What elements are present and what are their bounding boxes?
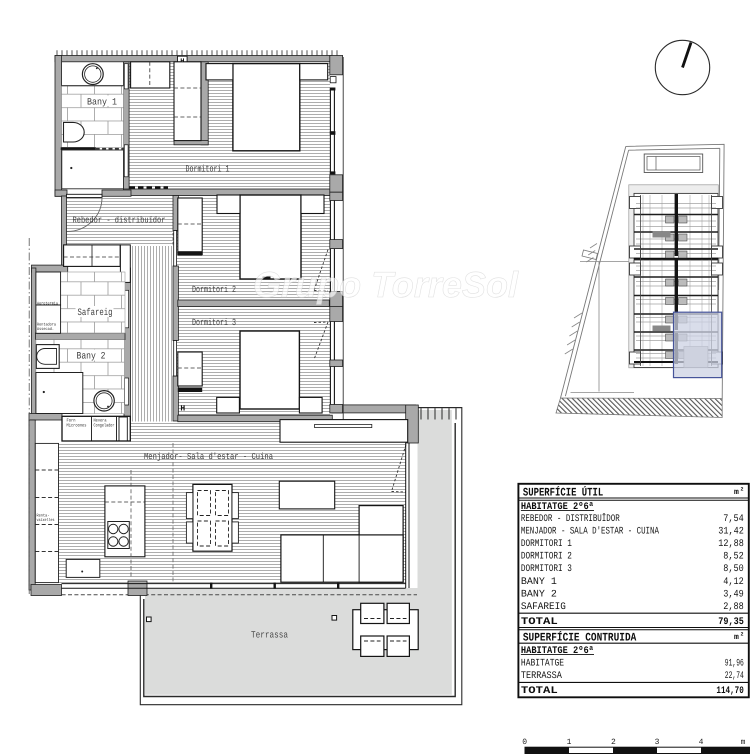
svg-text:3: 3 (655, 738, 660, 747)
svg-text:Safareig: Safareig (78, 307, 113, 318)
svg-text:8,52: 8,52 (723, 552, 744, 563)
svg-text:3,49: 3,49 (723, 589, 744, 600)
svg-text:Grupo TorreSol: Grupo TorreSol (253, 264, 519, 305)
svg-text:Congelador: Congelador (94, 422, 115, 428)
svg-text:DORMITORI 2: DORMITORI 2 (521, 552, 572, 563)
svg-text:BANY 2: BANY 2 (521, 589, 557, 600)
svg-text:2: 2 (741, 487, 744, 493)
svg-text:91,96: 91,96 (725, 658, 744, 669)
svg-text:0: 0 (522, 738, 527, 747)
svg-text:Bany 1: Bany 1 (87, 97, 117, 108)
svg-text:4,12: 4,12 (723, 577, 744, 588)
svg-text:Dormitori 3: Dormitori 3 (192, 317, 236, 328)
svg-text:m: m (734, 633, 739, 642)
svg-text:8,50: 8,50 (723, 564, 744, 575)
svg-text:1: 1 (567, 738, 572, 747)
svg-text:Terrassa: Terrassa (251, 630, 288, 641)
svg-text:TOTAL: TOTAL (521, 686, 558, 697)
svg-text:Renta-: Renta- (37, 514, 50, 519)
svg-text:MENJADOR - SALA D'ESTAR - CUIN: MENJADOR - SALA D'ESTAR - CUINA (521, 525, 659, 537)
svg-text:SUPERFÍCIE CONTRUIDA: SUPERFÍCIE CONTRUIDA (523, 630, 636, 644)
svg-text:TOTAL: TOTAL (521, 617, 558, 628)
svg-text:Microones: Microones (67, 422, 87, 428)
svg-text:Dormitori 1: Dormitori 1 (186, 164, 230, 175)
svg-text:m: m (741, 738, 746, 747)
svg-text:12,88: 12,88 (718, 539, 744, 550)
svg-text:Rebedor - distribuïdor: Rebedor - distribuïdor (73, 216, 166, 226)
svg-text:2: 2 (741, 632, 744, 638)
svg-text:31,42: 31,42 (718, 526, 744, 537)
svg-text:REBEDOR - DISTRIBUÏDOR: REBEDOR - DISTRIBUÏDOR (521, 513, 620, 525)
svg-text:Dormitori 2: Dormitori 2 (192, 284, 236, 295)
svg-text:HABITATGE 2º6ª: HABITATGE 2º6ª (521, 501, 594, 513)
svg-text:2: 2 (611, 738, 616, 747)
svg-text:4: 4 (699, 738, 704, 747)
svg-text:22,74: 22,74 (725, 671, 744, 682)
svg-text:BANY 1: BANY 1 (521, 577, 557, 588)
svg-text:7,54: 7,54 (723, 514, 744, 525)
svg-text:HABITATGE 2º6ª: HABITATGE 2º6ª (521, 645, 594, 657)
svg-text:HABITATGE: HABITATGE (521, 658, 564, 669)
svg-text:H: H (180, 405, 185, 414)
svg-text:114,70: 114,70 (716, 686, 743, 697)
svg-text:SAFAREIG: SAFAREIG (521, 602, 566, 613)
svg-text:2,88: 2,88 (723, 602, 744, 613)
svg-text:DORMITORI 3: DORMITORI 3 (521, 564, 572, 575)
svg-text:DORMITORI 1: DORMITORI 1 (521, 539, 572, 550)
svg-text:m: m (734, 488, 739, 497)
svg-text:Bany 2: Bany 2 (77, 351, 106, 362)
svg-text:79,35: 79,35 (718, 617, 744, 628)
svg-text:Menjador- Sala d'estar - Cuina: Menjador- Sala d'estar - Cuina (144, 452, 273, 462)
svg-text:TERRASSA: TERRASSA (521, 671, 562, 682)
